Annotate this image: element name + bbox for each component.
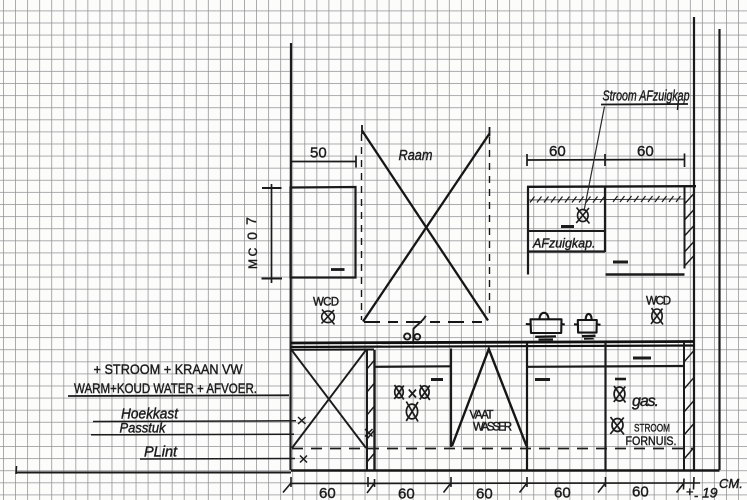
svg-text:60: 60 [632,484,649,500]
svg-text:WCD: WCD [646,296,671,308]
svg-text:50: 50 [310,145,327,162]
svg-text:WASSER: WASSER [473,422,512,434]
svg-text:AFzuigkap.: AFzuigkap. [532,237,596,251]
svg-text:+: + [686,484,694,499]
svg-text:FORNUIS.: FORNUIS. [626,436,677,448]
svg-text:19: 19 [702,485,718,500]
svg-text:0: 0 [244,232,260,240]
svg-text:60: 60 [554,485,571,500]
svg-text:Stroom AFzuigkap: Stroom AFzuigkap [603,89,690,105]
svg-text:+ STROOM + KRAAN VW: + STROOM + KRAAN VW [94,361,244,377]
svg-text:60: 60 [549,143,566,160]
svg-text:60: 60 [476,486,493,500]
svg-text:PLint: PLint [144,445,178,461]
svg-text:C: C [246,247,260,256]
svg-text:60: 60 [637,143,654,160]
svg-text:-: - [694,488,698,500]
svg-text:60: 60 [398,486,415,500]
svg-text:60: 60 [319,485,336,500]
svg-text:7: 7 [243,217,259,225]
svg-text:Passtuk: Passtuk [120,421,167,436]
svg-text:CM.: CM. [719,476,743,491]
svg-text:Raam: Raam [399,147,433,164]
svg-text:VAAT: VAAT [470,410,494,422]
svg-text:WARM+KOUD WATER + AFVOER.: WARM+KOUD WATER + AFVOER. [74,381,257,396]
svg-text:WCD: WCD [313,297,339,309]
svg-text:gas.: gas. [632,393,659,410]
svg-text:STROOM: STROOM [634,423,670,435]
svg-text:M: M [246,259,260,269]
